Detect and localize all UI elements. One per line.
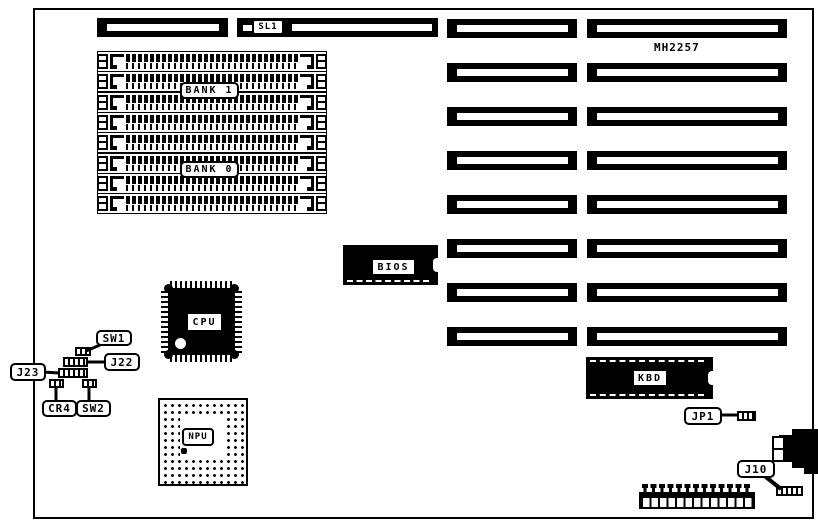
kbd-label: KBD — [633, 370, 667, 386]
sw2-label: SW2 — [76, 400, 111, 417]
j22-label: J22 — [104, 353, 140, 371]
cr4-label: CR4 — [42, 400, 77, 417]
bios-label: BIOS — [372, 259, 415, 275]
jp1-label: JP1 — [684, 407, 722, 425]
sw1-label: SW1 — [96, 330, 132, 346]
j23-label: J23 — [10, 363, 46, 381]
cpu-label: CPU — [187, 313, 222, 331]
motherboard-diagram: SL1 MH2257 BANK 1 BANK 0 BIOS KBD CPU NP… — [0, 0, 818, 527]
sl1-label: SL1 — [253, 20, 283, 34]
bank1-label: BANK 1 — [180, 82, 239, 99]
bank0-label: BANK 0 — [180, 161, 239, 178]
j10-label: J10 — [737, 460, 775, 478]
